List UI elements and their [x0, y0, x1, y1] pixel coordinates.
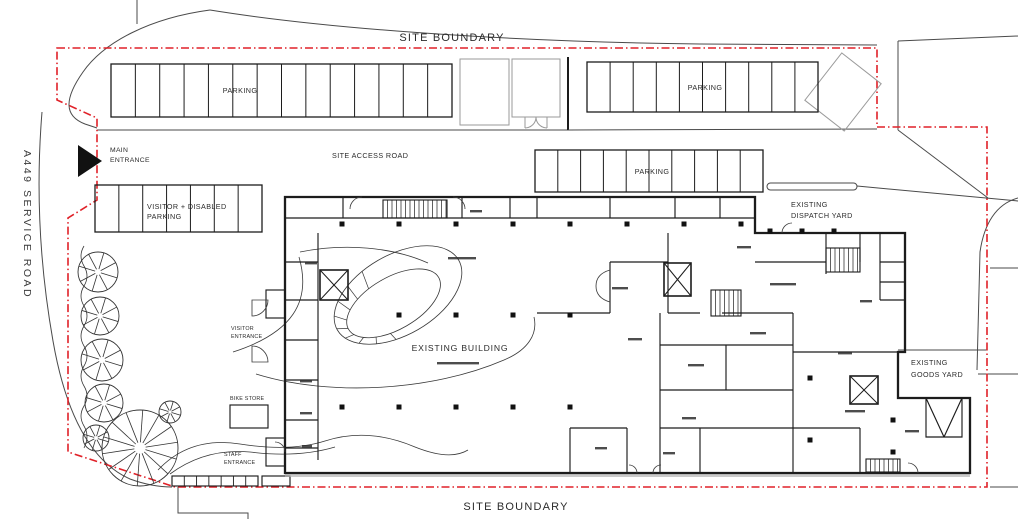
micro-label [305, 262, 317, 264]
road-top-edge [210, 10, 877, 45]
tree-branch [82, 354, 99, 359]
micro-label [770, 283, 796, 285]
tree-branch [99, 275, 107, 290]
tree-branch [103, 363, 111, 379]
tree-symbol [78, 252, 118, 292]
tree-branch [167, 414, 170, 423]
tree-symbol [85, 384, 123, 422]
tree-branch [171, 413, 175, 421]
ellipse-ticks [318, 271, 400, 362]
parking-lot-north-west [111, 64, 452, 117]
tree-branch [97, 440, 102, 450]
tree-branch [165, 402, 169, 410]
column-marker [397, 405, 402, 410]
site-boundary-path [57, 48, 987, 487]
column-marker [832, 229, 837, 234]
hedge-squiggle [81, 246, 87, 448]
tree-branch [103, 317, 118, 322]
ellipse-tick [373, 337, 379, 344]
road-left-kerb [39, 112, 172, 487]
tree-branch [105, 406, 113, 420]
road-loop-outer [69, 10, 210, 128]
dispatch-yard-label: EXISTING DISPATCH YARD [791, 200, 853, 220]
stair-outline [383, 200, 447, 218]
tree-branch [98, 432, 108, 437]
parking-label-nw: PARKING [223, 86, 258, 95]
column-grid [340, 222, 896, 455]
tree-branch [103, 307, 117, 315]
tree-branch [96, 363, 101, 380]
bike-store-label: BIKE STORE [230, 396, 264, 402]
parking-label-central: PARKING [635, 167, 670, 176]
tree-branch [146, 442, 178, 447]
tree-branch [109, 451, 136, 469]
tree-branch [105, 361, 122, 366]
micro-label [860, 300, 872, 302]
visitor-disabled-parking-label: VISITOR + DISABLED PARKING [147, 202, 229, 221]
micro-label [682, 417, 696, 419]
ellipse-tick [359, 271, 371, 289]
tree-branch [145, 427, 172, 445]
tree-branch [172, 412, 181, 415]
column-marker [454, 313, 459, 318]
column-marker [397, 313, 402, 318]
tree-branch [99, 253, 104, 269]
column-marker [800, 229, 805, 234]
ellipse-tick [390, 332, 396, 340]
tree-branch [91, 299, 99, 313]
column-marker [739, 222, 744, 227]
column-marker [568, 222, 573, 227]
tree-branch [101, 263, 116, 271]
dock-ramp-v [926, 398, 962, 437]
enclosure-door-swing [525, 117, 547, 128]
shrub-band-1 [158, 435, 468, 470]
tree-branch [89, 254, 97, 269]
column-marker [568, 405, 573, 410]
micro-label [437, 362, 479, 364]
tree-branch [121, 453, 137, 481]
ellipse-tick [345, 334, 354, 340]
column-marker [397, 222, 402, 227]
road-kerb-east [568, 129, 877, 130]
micro-label [302, 445, 312, 447]
tree-branch [95, 386, 103, 400]
tree-symbol [81, 339, 123, 381]
tree-branch [83, 317, 97, 325]
tree-branch [79, 266, 95, 271]
tree-branch [160, 413, 168, 417]
road-right-curve [977, 198, 1018, 370]
tree-branch [170, 401, 173, 410]
micro-label [845, 410, 865, 412]
tree-branch [80, 273, 95, 281]
trees [78, 252, 181, 486]
micro-label [470, 210, 482, 212]
tree-branch [159, 409, 168, 412]
tree-branch [103, 340, 108, 357]
column-marker [891, 418, 896, 423]
ellipse-tick [358, 337, 365, 343]
column-marker [625, 222, 630, 227]
visitor-porch [266, 290, 285, 318]
column-marker [808, 438, 813, 443]
column-marker [768, 229, 773, 234]
parking-label-ne: PARKING [688, 83, 723, 92]
road-connector-ne [898, 130, 988, 198]
tree-branch [107, 394, 121, 402]
entrance-arrow-icon [78, 145, 102, 177]
pavement-dividers [184, 476, 245, 486]
a449-service-road-label: A449 SERVICE ROAD [21, 150, 33, 299]
tree-symbol [102, 410, 178, 486]
path-arc-1 [300, 247, 428, 263]
tree-branch [143, 415, 159, 443]
tree-branch [86, 397, 101, 402]
parking-lots: PARKING PARKING PARKING VISITOR + DISABL… [95, 62, 818, 232]
tree-branch [105, 385, 110, 400]
visitor-entrance-label: VISITOR ENTRANCE [231, 326, 262, 340]
micro-label [905, 430, 919, 432]
column-marker [340, 222, 345, 227]
entrance-fan-south [252, 346, 268, 362]
micro-label [628, 338, 642, 340]
labels: SITE BOUNDARY SITE BOUNDARY A449 SERVICE… [21, 32, 963, 513]
column-marker [511, 405, 516, 410]
pavement-strip-2 [262, 476, 290, 486]
micro-label [838, 352, 852, 354]
micro-label [688, 364, 704, 366]
stair-blocks [383, 200, 900, 472]
site-boundary-top-label: SITE BOUNDARY [399, 32, 504, 44]
tree-branch [94, 319, 99, 334]
tree-branch [87, 404, 101, 412]
tree-branch [171, 407, 179, 411]
stair-outline [826, 248, 860, 272]
column-marker [511, 313, 516, 318]
tree-branch [82, 310, 97, 315]
diagonal-enclosure [805, 53, 881, 131]
tree-branch [92, 341, 100, 357]
tree-branch [107, 404, 122, 409]
road-bottom-notch [178, 487, 248, 519]
pavement-strip [172, 476, 258, 486]
door-swings [275, 197, 918, 473]
main-entrance-label: MAIN ENTRANCE [110, 147, 150, 164]
site-plan-canvas: PARKING PARKING PARKING VISITOR + DISABL… [0, 0, 1018, 519]
tree-branch [101, 298, 106, 313]
road-lines [39, 0, 1018, 519]
micro-label [300, 412, 312, 414]
micro-label [300, 380, 312, 382]
enclosure-box-1 [460, 59, 509, 125]
goods-yard-label: EXISTING GOODS YARD [911, 358, 963, 379]
micro-label [750, 332, 766, 334]
micro-label [663, 452, 675, 454]
enclosure-box-2 [512, 59, 560, 117]
tree-branch [101, 319, 109, 333]
tree-branch [92, 275, 97, 291]
ellipse-tick [348, 285, 358, 300]
site-access-road-label: SITE ACCESS ROAD [332, 151, 408, 160]
micro-label [595, 447, 607, 449]
tree-branch [98, 406, 103, 421]
tree-branch [90, 427, 95, 437]
tree-symbol [159, 401, 181, 423]
road-dispatch-diagonal [857, 186, 1018, 201]
tree-branch [101, 273, 117, 278]
road-top-right-edge [898, 36, 1018, 41]
column-marker [454, 222, 459, 227]
column-marker [808, 376, 813, 381]
site-boundary-bottom-label: SITE BOUNDARY [463, 501, 568, 513]
stair-outline [866, 459, 900, 472]
micro-label [737, 246, 751, 248]
column-marker [454, 405, 459, 410]
tree-branch [97, 426, 100, 437]
tree-branch [142, 453, 154, 483]
column-marker [511, 222, 516, 227]
ellipse-tick [334, 312, 347, 325]
tree-branch [105, 350, 121, 358]
staff-entrance-label: STAFF ENTRANCE [224, 452, 255, 466]
tree-branch [140, 410, 142, 442]
column-marker [568, 313, 573, 318]
column-marker [891, 450, 896, 455]
pavement [78, 145, 290, 486]
micro-label [612, 287, 628, 289]
micro-label [448, 257, 476, 259]
existing-building-label: EXISTING BUILDING [412, 343, 509, 353]
tree-branch [126, 413, 138, 443]
column-marker [682, 222, 687, 227]
interior-walls [285, 197, 905, 473]
road-median-strip [767, 183, 857, 190]
tree-branch [102, 449, 134, 454]
tree-branch [137, 454, 139, 486]
column-marker [340, 405, 345, 410]
bike-store-box [230, 405, 268, 428]
